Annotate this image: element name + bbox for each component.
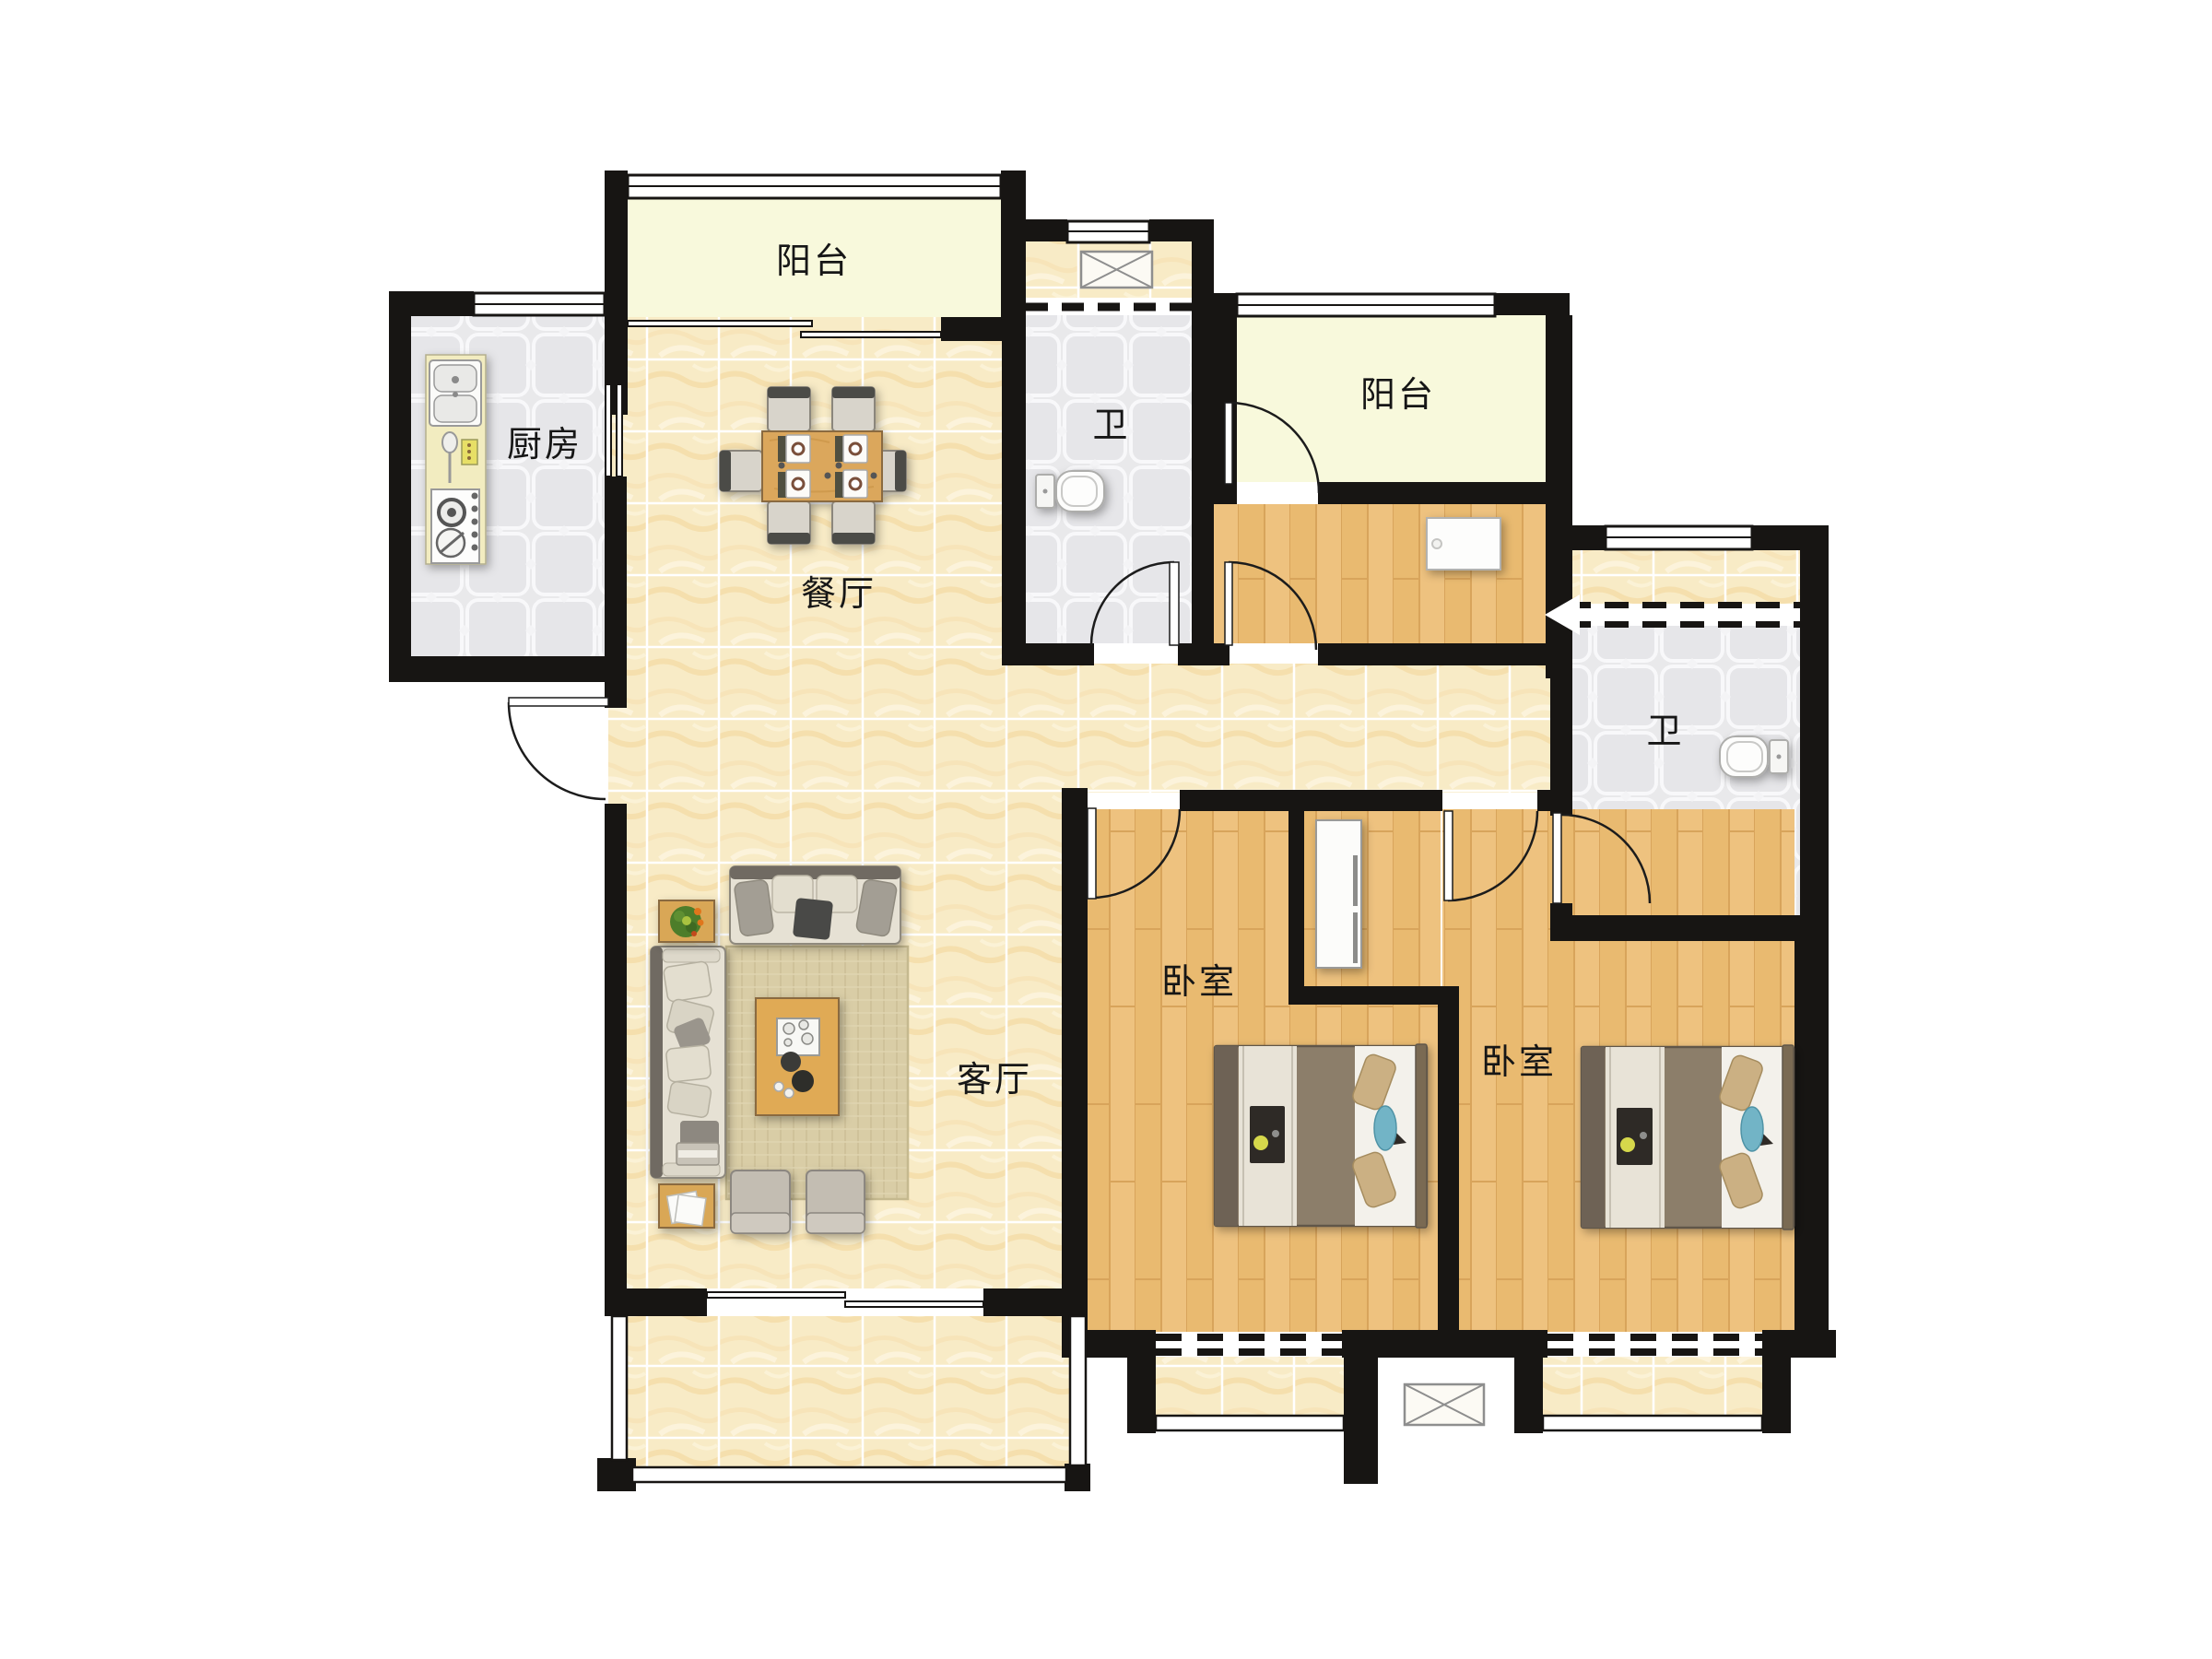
vent-shaft-icon [1081,252,1152,288]
wall [983,1288,1069,1316]
room-label-bathroom-2: 卫 [1646,712,1684,751]
east-balcony-window [1237,294,1495,316]
wall [1794,941,1829,1358]
room-label-living: 客厅 [957,1061,1032,1100]
wall [1318,643,1550,665]
bed-panel [1250,1106,1285,1163]
room-label-bedroom-2: 卧室 [1481,1043,1557,1082]
wall [1288,986,1442,1005]
dining-chair [768,387,810,431]
throw-blanket [793,898,833,940]
wall [1550,915,1829,941]
wall [1002,643,1094,665]
bed-panel [1617,1108,1653,1165]
kitchen-window [474,293,605,315]
shaft-window [1067,221,1149,242]
wall [1495,293,1570,315]
slider-leaf [707,1292,845,1298]
wall [1149,219,1214,241]
bowl-icon [781,1052,801,1072]
bathroom-1-pass [1026,298,1192,315]
wardrobe-icon [1316,820,1361,968]
loveseat-sofa [730,866,900,944]
headboard [1416,1044,1427,1228]
headboard [1783,1045,1794,1230]
bedroom-1-balcony-pass [1156,1333,1342,1357]
room-label-bedroom-1: 卧室 [1161,963,1237,1002]
room-label-balcony-east: 阳台 [1360,376,1436,415]
wall [1752,525,1829,550]
kitchen-door-jamb [606,384,611,477]
wall [1062,788,1088,1332]
wall [1438,986,1459,1332]
glass-wall [612,1316,627,1460]
ottoman [806,1171,865,1233]
toilet-1-icon [1036,471,1104,512]
wall [1002,219,1067,241]
side-service-door [509,698,608,799]
coffee-table [756,998,839,1115]
south-balcony-floor [627,1316,1070,1469]
kitchen-counter [426,355,486,564]
room-label-kitchen: 厨房 [507,426,582,465]
washer-icon [1427,518,1500,570]
wall [389,291,411,682]
bed-2 [1582,1045,1794,1230]
room-label-balcony-north: 阳台 [776,242,852,281]
bowl-icon [792,1070,814,1092]
side-table-plant [659,900,714,942]
slider-leaf [801,332,941,337]
blue-cushion [1374,1106,1396,1150]
wall [605,1288,707,1316]
sink-icon [429,360,481,426]
wall [389,656,627,682]
floor-plan: 阳台 厨房 餐厅 卫 阳台 卫 客厅 卧室 卧室 [0,0,2212,1659]
wall [1288,806,1304,991]
side-table-papers [659,1184,714,1228]
wall [1002,241,1026,665]
wall [1192,241,1214,665]
dining-chair [768,501,810,544]
wall [605,171,628,415]
blue-cushion [1741,1107,1763,1151]
wall [389,291,474,316]
bedroom-1-balcony-floor [1156,1355,1344,1418]
dining-chair [832,387,875,431]
dining-chair [832,501,875,544]
living-room-set [651,866,908,1233]
room-label-dining: 餐厅 [801,575,877,614]
wall [1318,482,1546,504]
glass-wall [1070,1316,1086,1465]
dining-table [762,431,882,501]
bedroom-2-balcony-pass [1547,1333,1762,1357]
wall [1762,1330,1791,1433]
wall [1800,550,1829,941]
corridor-floor [1065,664,1550,793]
entry-window [1606,526,1752,549]
toilet-2-icon [1720,736,1788,777]
wall [605,804,627,1288]
glass-wall [632,1467,1066,1482]
entry-floor [1572,550,1800,606]
bedroom-2-balcony-floor [1543,1355,1762,1418]
wall [1065,1464,1090,1491]
north-balcony-window [628,175,1001,198]
wall [605,477,627,658]
bed-1 [1215,1044,1427,1228]
wall [1537,790,1558,811]
wall [1180,790,1442,811]
ac-platform-icon [1405,1384,1484,1425]
slider-leaf [628,321,812,326]
floor-plan-page: 阳台 厨房 餐厅 卫 阳台 卫 客厅 卧室 卧室 [0,0,2212,1659]
wall [1572,525,1606,550]
wall [1178,643,1230,665]
slider-leaf [845,1301,983,1307]
long-sofa [651,947,725,1178]
stove-icon [431,489,479,563]
room-label-bathroom-1: 卫 [1092,406,1130,445]
wall [1127,1330,1156,1433]
ottoman [731,1171,790,1233]
wall [597,1458,636,1491]
wall [1344,1330,1378,1484]
glass-wall [1543,1416,1762,1430]
dining-chair [720,451,762,491]
kitchen-door-jamb [617,384,622,477]
living-floor-extension [1002,665,1065,1288]
wall [1514,1330,1543,1433]
glass-wall [1156,1416,1344,1430]
